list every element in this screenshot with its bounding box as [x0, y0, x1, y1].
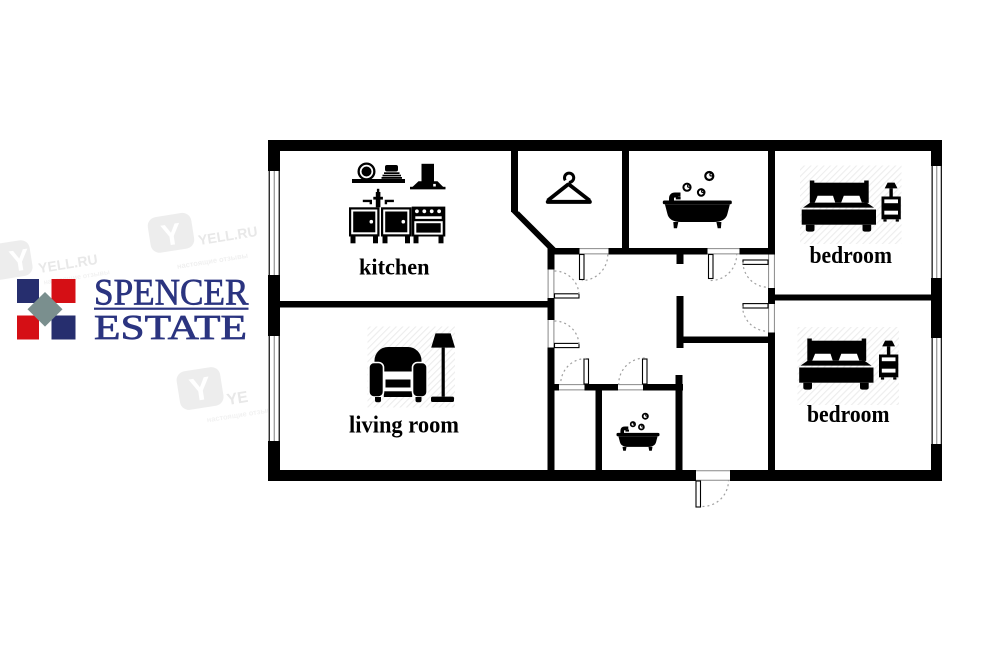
svg-text:ESTATE: ESTATE [94, 308, 247, 347]
svg-text:YE: YE [226, 389, 250, 409]
svg-text:bedroom: bedroom [810, 243, 893, 269]
svg-text:living room: living room [349, 412, 459, 438]
svg-text:bedroom: bedroom [807, 402, 890, 428]
svg-text:kitchen: kitchen [359, 254, 430, 279]
